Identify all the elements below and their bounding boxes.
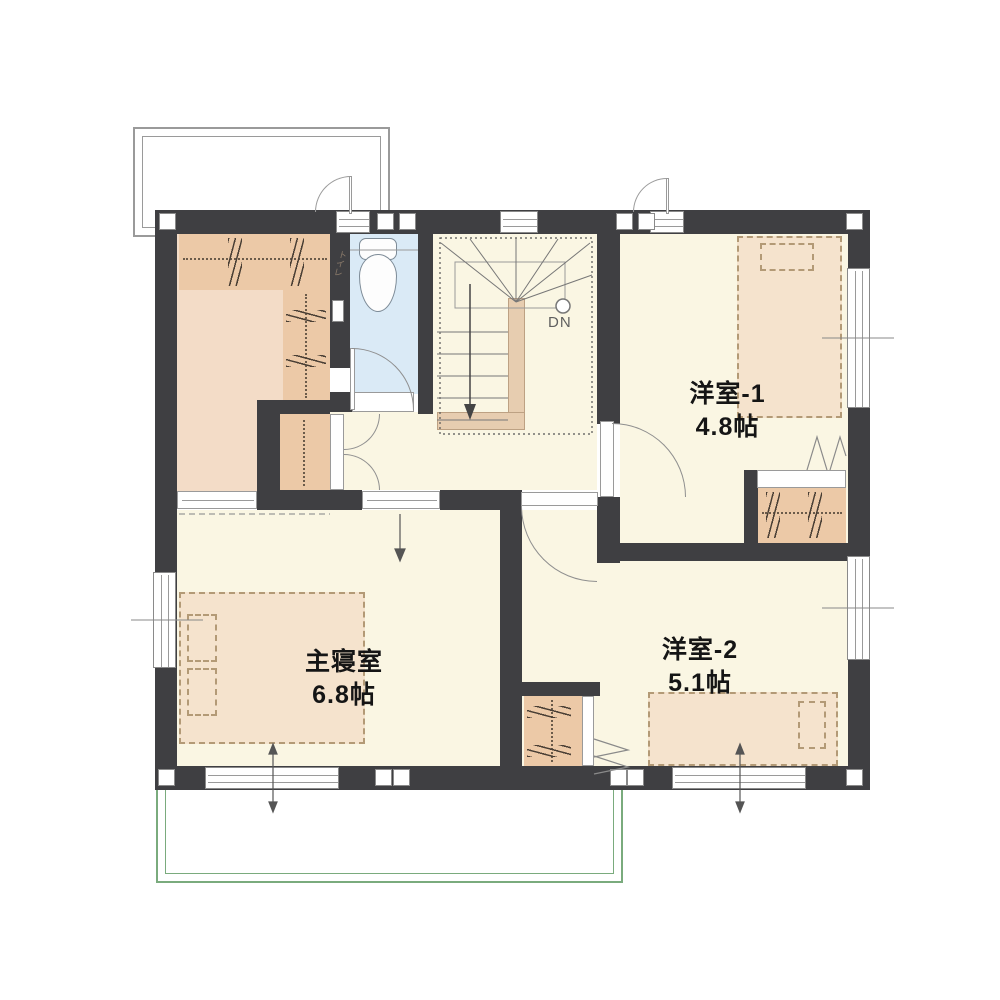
pillow	[187, 668, 217, 716]
hall-closet	[280, 414, 330, 490]
window-top-room1	[650, 211, 684, 233]
hanger-rod	[183, 258, 327, 260]
window-right-room2	[847, 556, 870, 660]
floor-plan: 洋室-1 4.8帖 洋室-2 5.1帖 主寝室 6.8帖 DN トイレ	[0, 0, 1000, 1000]
pipe-marks	[527, 706, 571, 718]
room-name: 主寝室	[254, 646, 434, 679]
window-left-master	[153, 572, 176, 668]
wall-outer-left	[155, 210, 177, 790]
window-top-toilet	[336, 211, 370, 233]
pipe-marks	[527, 745, 571, 757]
pipe-marks	[286, 310, 326, 322]
room-area: 5.1帖	[610, 667, 790, 700]
pillar	[638, 213, 655, 230]
pillow	[798, 701, 826, 749]
closet-track-room1	[757, 470, 846, 488]
toilet-window-leaf	[349, 176, 352, 214]
pillar	[377, 213, 394, 230]
wall-hall-south-a	[257, 490, 362, 510]
window-right-room1	[847, 268, 870, 408]
hanger-rod	[303, 420, 305, 486]
pipe-marks	[290, 238, 304, 286]
pillar	[846, 213, 863, 230]
pillar	[393, 769, 410, 786]
stair-handrail	[437, 412, 525, 430]
pipe-marks	[808, 492, 822, 538]
room-name: 洋室-1	[640, 378, 815, 411]
closet-track-room2	[582, 696, 594, 766]
wic-hanger-band	[179, 234, 330, 290]
pipe-marks	[286, 355, 326, 367]
label-stairs-dn: DN	[548, 314, 572, 331]
pillar	[610, 769, 627, 786]
window-top-stairs	[500, 211, 538, 233]
pillar	[158, 769, 175, 786]
pillar	[627, 769, 644, 786]
wall-master-room2	[500, 490, 522, 768]
wall-room1-closet-left	[744, 470, 758, 545]
room1-window-swing	[633, 178, 667, 212]
wic-sliding-door	[177, 491, 257, 509]
pillar	[616, 213, 633, 230]
pillar	[159, 213, 176, 230]
window-bottom-room2	[672, 767, 806, 789]
pipe-marks	[766, 492, 780, 538]
wall-wic-bottom	[257, 400, 330, 414]
hall-closet-doors	[330, 414, 344, 490]
wall-room1-bottom	[597, 543, 848, 561]
pipe-marks	[228, 238, 242, 286]
pillar	[846, 769, 863, 786]
wall-room1-upper	[597, 234, 620, 424]
pillar	[399, 213, 416, 230]
window-bottom-master	[205, 767, 339, 789]
stair-handrail	[508, 298, 525, 430]
label-master-bedroom: 主寝室 6.8帖	[254, 646, 434, 711]
toilet-paper-holder	[332, 300, 344, 322]
room-area: 4.8帖	[640, 411, 815, 444]
master-sliding-door	[362, 491, 440, 509]
wall-stair-left	[418, 234, 433, 414]
room-area: 6.8帖	[254, 679, 434, 712]
balcony-outline-inner	[165, 789, 614, 874]
room-name: 洋室-2	[610, 634, 790, 667]
label-western-room-1: 洋室-1 4.8帖	[640, 378, 815, 443]
room1-window-leaf	[666, 178, 669, 214]
pillar	[375, 769, 392, 786]
room2-door-leaf	[521, 492, 598, 506]
wall-room2-closet-top	[500, 682, 600, 696]
pillow	[187, 614, 217, 662]
label-western-room-2: 洋室-2 5.1帖	[610, 634, 790, 699]
pillow	[760, 243, 814, 271]
